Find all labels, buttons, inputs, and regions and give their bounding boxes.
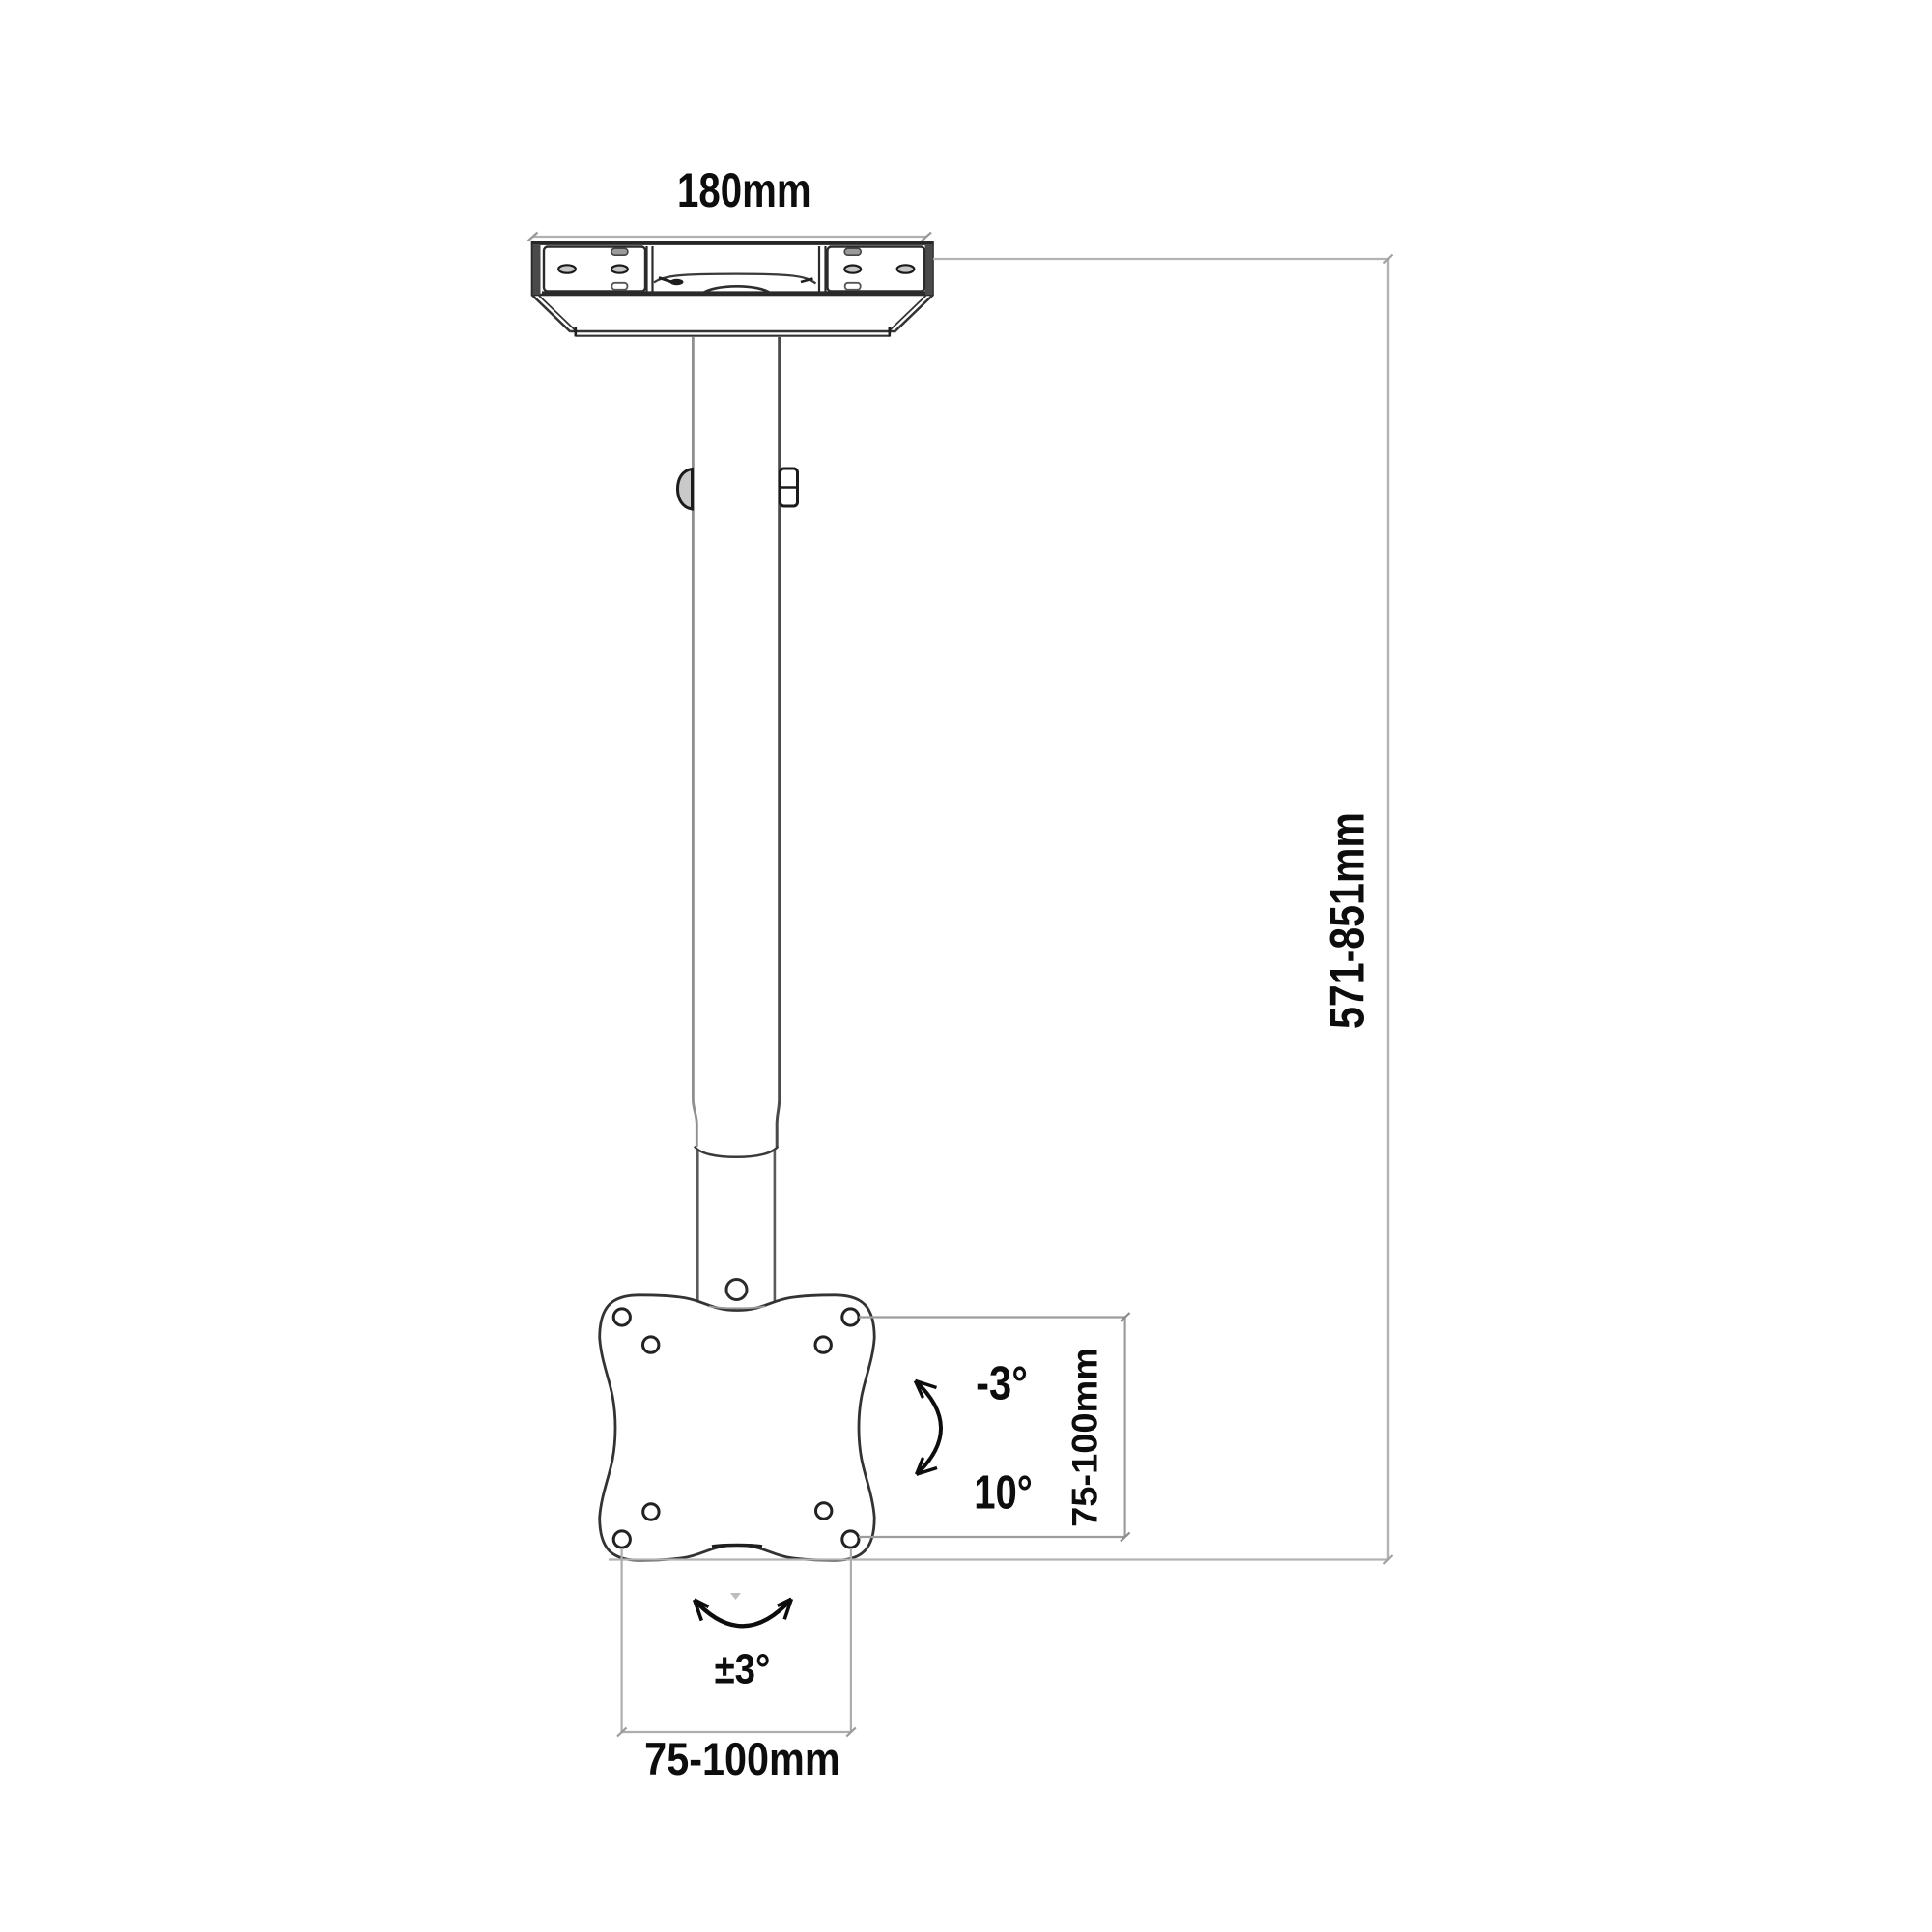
svg-text:571-851mm: 571-851mm xyxy=(1319,812,1374,1029)
svg-text:±3°: ±3° xyxy=(715,1645,771,1692)
svg-text:180mm: 180mm xyxy=(677,163,811,217)
svg-text:75-100mm: 75-100mm xyxy=(644,1735,839,1785)
svg-text:-3°: -3° xyxy=(976,1356,1028,1409)
svg-text:10°: 10° xyxy=(974,1467,1033,1520)
svg-text:75-100mm: 75-100mm xyxy=(1065,1348,1104,1527)
